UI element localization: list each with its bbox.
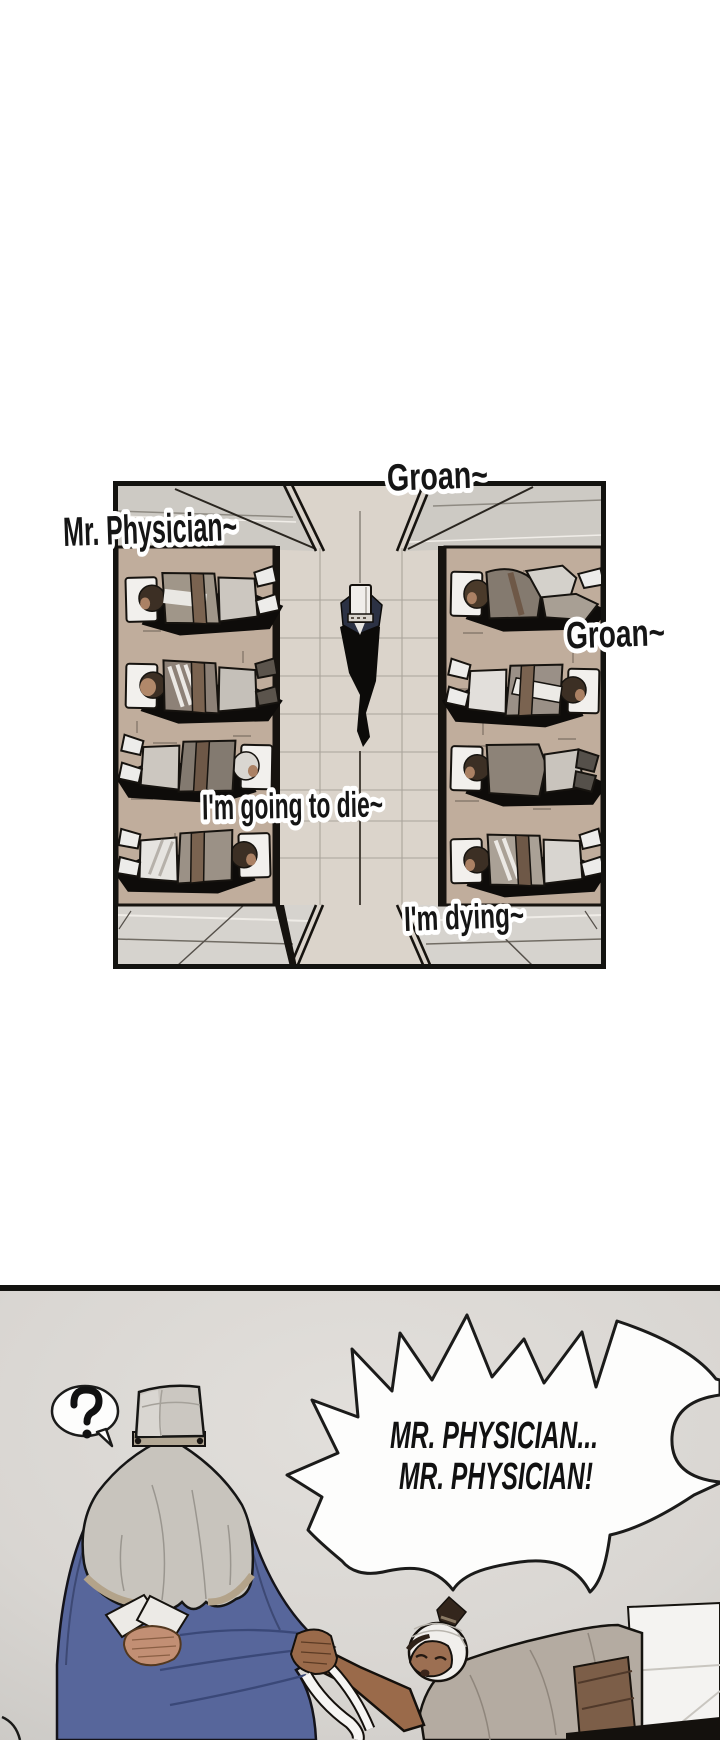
svg-text:Groan~: Groan~: [386, 454, 488, 499]
svg-text:Mr. Physician~: Mr. Physician~: [62, 503, 237, 555]
svg-text:Groan~: Groan~: [565, 612, 665, 657]
svg-text:MR. PHYSICIAN...: MR. PHYSICIAN...: [390, 1415, 598, 1457]
svg-text:I'm going to die~: I'm going to die~: [202, 783, 384, 827]
svg-text:MR. PHYSICIAN!: MR. PHYSICIAN!: [399, 1456, 593, 1498]
svg-text:I'm dying~: I'm dying~: [403, 896, 524, 939]
